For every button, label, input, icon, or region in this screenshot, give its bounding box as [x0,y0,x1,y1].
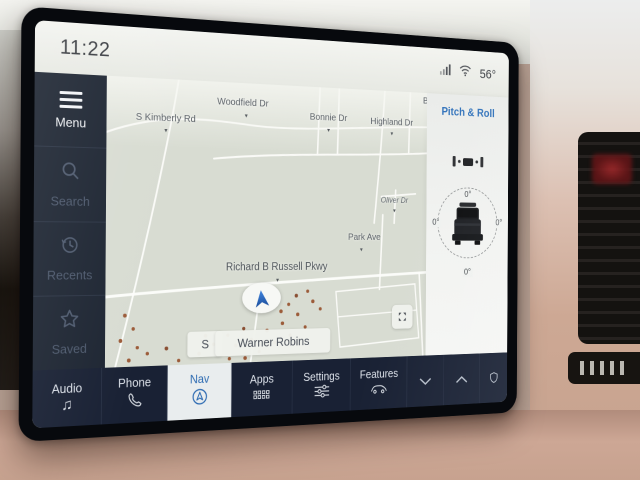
sidebar-item-label: Search [51,193,90,208]
tab-apps[interactable]: Apps [231,361,292,418]
chevron-up-button[interactable] [444,353,480,405]
street-tick: ▾ [360,246,363,253]
street-label: Bonnie Dr [310,111,348,124]
tab-nav[interactable]: Nav [168,363,232,421]
roll-left-value: 0° [431,218,441,228]
street-tick: ▾ [393,207,396,214]
star-icon [59,308,80,335]
tab-phone[interactable]: Phone [101,365,168,424]
city-label-pill: Warner Robins [215,328,330,357]
sidebar-item-recents[interactable]: Recents [33,221,106,296]
hamburger-icon [60,91,83,109]
chevron-down-icon [419,377,431,385]
street-label: Park Ave [348,232,381,243]
recenter-button[interactable] [392,305,413,329]
nav-sidebar: Menu Search [33,72,107,371]
vent-red-reflection [592,154,632,184]
sidebar-item-saved[interactable]: Saved [33,294,106,370]
tab-settings[interactable]: Settings [292,358,351,413]
tab-label: Phone [118,376,151,391]
pitch-roll-title: Pitch & Roll [442,104,495,119]
recents-clock-icon [59,234,80,261]
car-icon [370,382,387,399]
tab-features[interactable]: Features [351,356,408,410]
pitch-roll-gauge: 0° 0° 0° 0° [434,182,501,262]
street-label: S Kimberly Rd [136,111,196,125]
map-canvas[interactable]: Woodfield Dr ▾ S Kimberly Rd ▾ Bonnie Dr… [105,76,427,368]
sliders-icon [313,384,329,402]
sidebar-item-label: Recents [47,268,92,283]
profile-shield-icon [488,371,499,385]
tab-label: Settings [303,369,339,383]
expand-arrows-icon [397,310,409,324]
music-note-icon: ♫ [61,398,73,414]
chevron-up-icon [456,375,468,383]
screen-wrap: 11:22 56° [19,6,519,442]
screen-bezel: 11:22 56° [19,6,519,442]
roll-right-value: 0° [494,218,504,227]
tab-label: Features [360,367,398,381]
wifi-icon [459,65,471,81]
street-tick: ▾ [327,126,330,133]
tab-audio[interactable]: Audio ♫ [32,368,102,428]
sidebar-item-search[interactable]: Search [34,146,107,222]
street-tick: ▾ [245,112,248,120]
street-tick: ▾ [276,276,279,283]
chevron-down-button[interactable] [407,355,444,407]
tab-label: Audio [52,381,83,396]
phone-handset-icon [127,391,143,413]
apps-grid-icon [253,387,270,404]
compass-letter: S [201,337,209,351]
clock: 11:22 [60,36,110,63]
street-tick: ▾ [164,127,167,135]
sidebar-item-label: Saved [52,341,87,357]
dashboard-photo: 11:22 56° [0,0,640,480]
street-label: Richard B Russell Pkwy [226,261,327,273]
vent-adjuster [568,352,640,384]
street-label: B [423,96,427,107]
infotainment-screen: 11:22 56° [32,20,509,428]
street-label: Woodfield Dr [217,96,268,110]
vehicle-rear-silhouette [451,200,485,249]
cellular-signal-icon [440,63,451,79]
street-tick: ▾ [391,130,394,137]
search-icon [60,160,81,187]
street-label: Oliver Dr [381,195,408,204]
street-label: Highland Dr [370,115,413,127]
main-content: Menu Search [33,72,509,371]
pitch-front-value: 0° [463,190,473,200]
air-vent [578,132,640,344]
sidebar-item-menu[interactable]: Menu [34,72,107,148]
outside-temperature: 56° [480,66,496,82]
pitch-rear-value: 0° [462,268,472,278]
profile-button[interactable] [480,352,507,403]
roll-indicator-icon [452,154,484,173]
sidebar-item-label: Menu [55,114,86,130]
nav-arrow-circle-icon [191,387,208,411]
pitch-roll-widget: Pitch & Roll 0° 0° [426,93,509,355]
tab-label: Nav [190,372,210,386]
tab-label: Apps [250,372,274,386]
city-label: Warner Robins [238,334,310,350]
